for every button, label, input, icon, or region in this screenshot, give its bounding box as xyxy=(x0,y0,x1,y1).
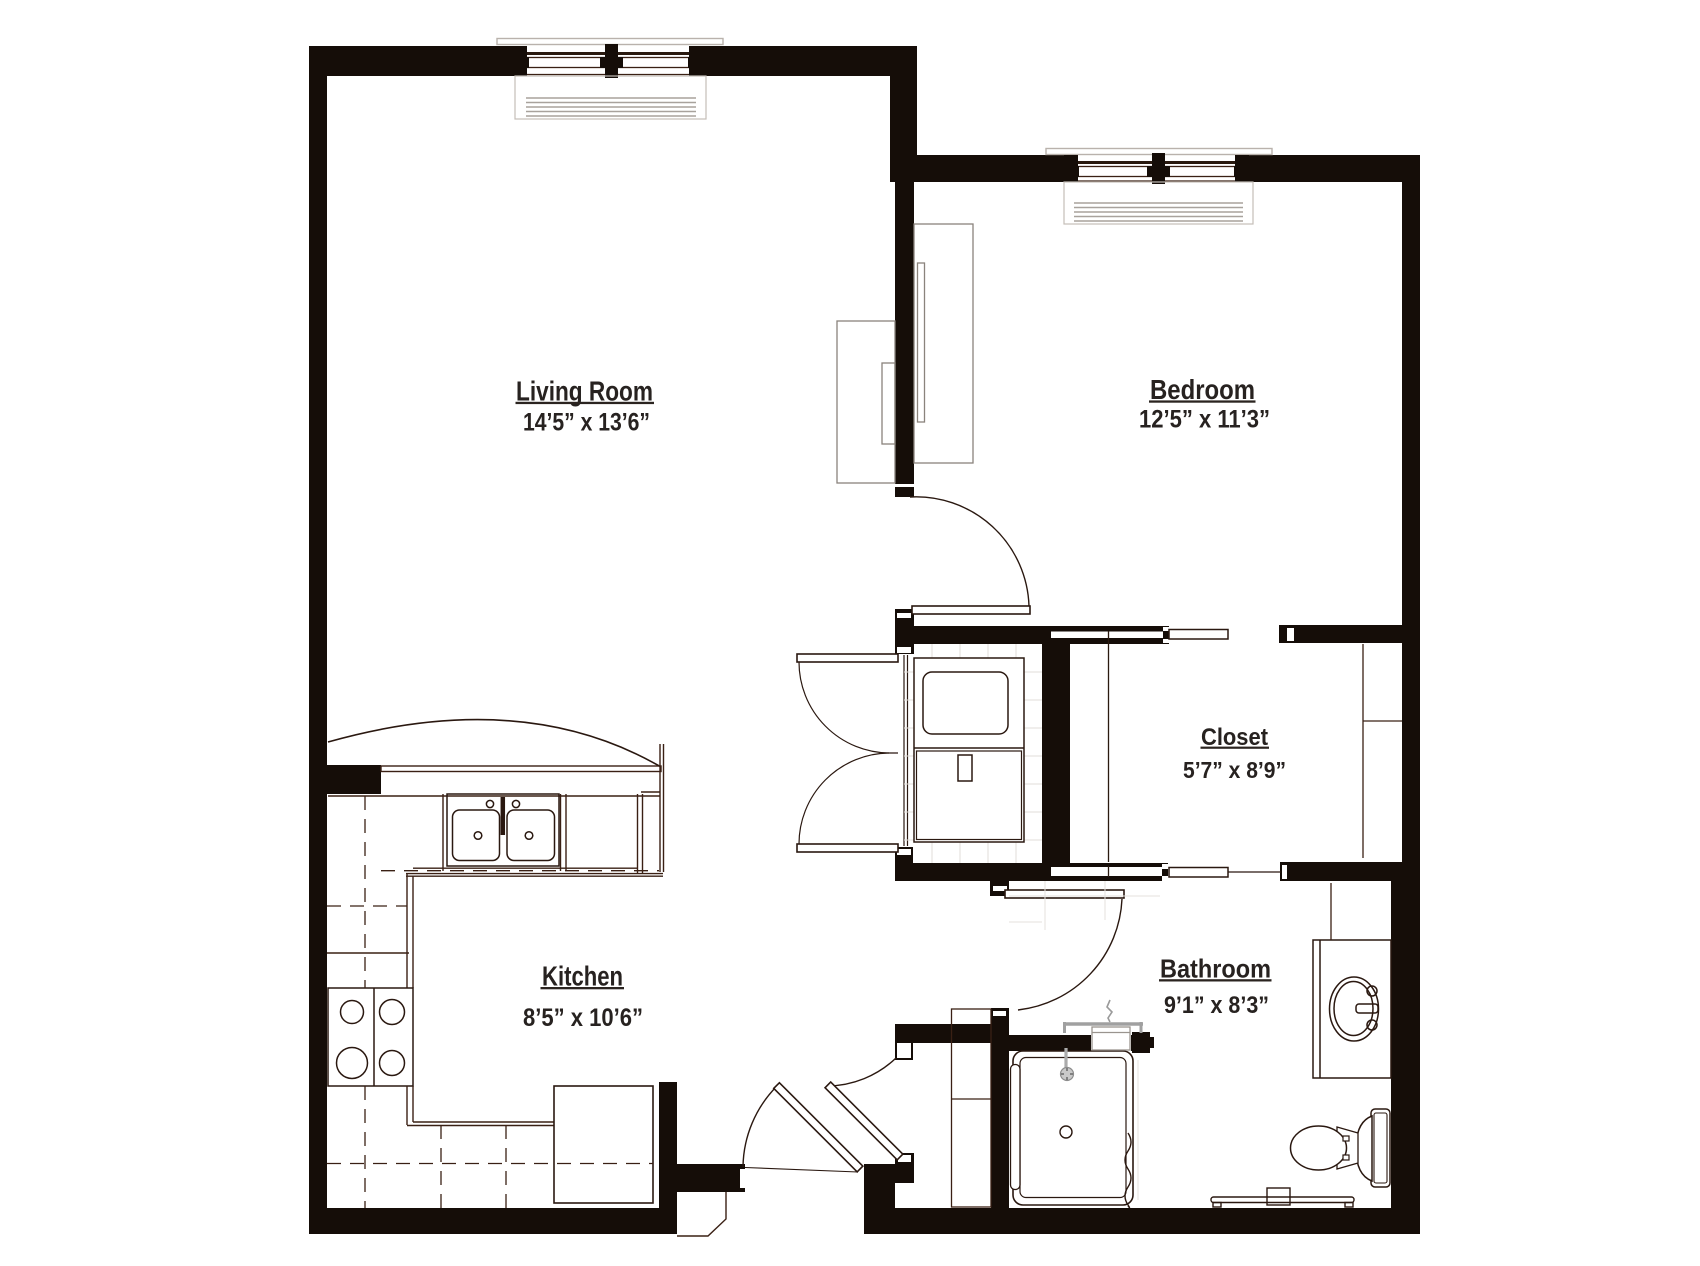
svg-text:8’5” x 10’6”: 8’5” x 10’6” xyxy=(523,1004,643,1032)
svg-text:12’5” x 11’3”: 12’5” x 11’3” xyxy=(1139,406,1270,434)
svg-text:9’1” x 8’3”: 9’1” x 8’3” xyxy=(1164,992,1269,1019)
svg-text:Bedroom: Bedroom xyxy=(1150,374,1255,405)
svg-text:5’7” x 8’9”: 5’7” x 8’9” xyxy=(1183,757,1286,783)
svg-text:14’5” x 13’6”: 14’5” x 13’6” xyxy=(523,409,650,437)
svg-text:Kitchen: Kitchen xyxy=(542,961,623,992)
svg-text:Bathroom: Bathroom xyxy=(1160,954,1271,984)
